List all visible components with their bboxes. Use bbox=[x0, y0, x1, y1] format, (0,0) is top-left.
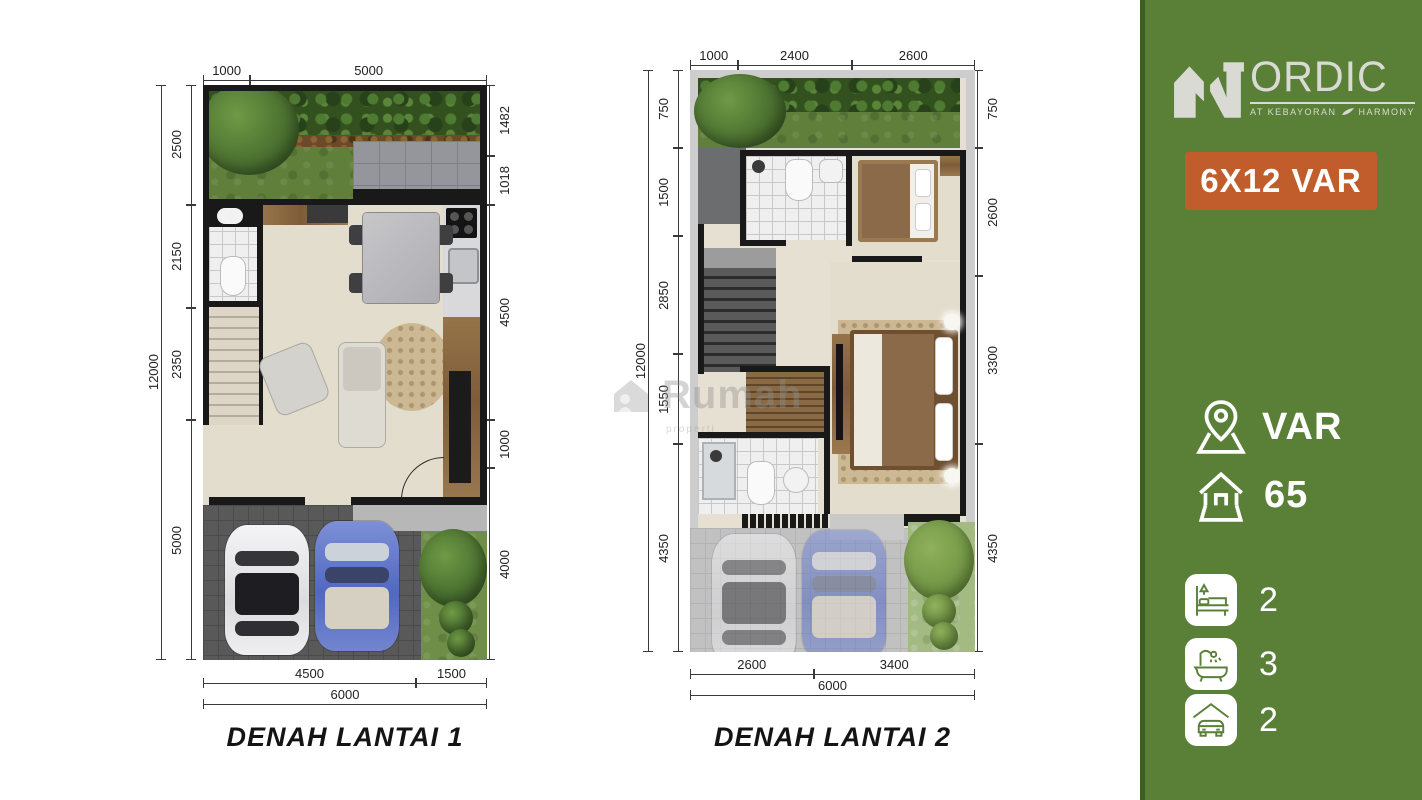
car-interior bbox=[325, 587, 389, 629]
car-windshield bbox=[235, 551, 299, 566]
plan2-left-total-dimension: 12000 bbox=[633, 70, 649, 652]
sidebar-accent-stripe bbox=[1140, 0, 1145, 800]
dimension-label: 5000 bbox=[162, 420, 192, 660]
bathrooms-count: 3 bbox=[1259, 645, 1278, 684]
dimension-label: 4500 bbox=[489, 205, 519, 421]
bathroom-sink bbox=[820, 160, 842, 182]
plan2-title: DENAH LANTAI 2 bbox=[690, 722, 975, 753]
stairs bbox=[209, 307, 261, 425]
dimension-label: 2850 bbox=[649, 236, 679, 354]
plan1-left-total-dimension: 12000 bbox=[146, 85, 162, 660]
dimension-label: 1500 bbox=[649, 148, 679, 236]
wall bbox=[740, 366, 830, 372]
stairs bbox=[704, 268, 776, 372]
floorplan-1-image bbox=[203, 85, 487, 660]
brand-logo: ORDIC AT KEBAYORAN HARMONY bbox=[1172, 56, 1415, 120]
car-blue bbox=[315, 521, 399, 651]
car-rear-window bbox=[722, 630, 786, 645]
feature-bedrooms: 2 bbox=[1185, 574, 1278, 626]
shower-drain bbox=[752, 160, 765, 173]
plan2-top-dimensions: 1000 2400 2600 bbox=[690, 42, 975, 66]
dimension-label: 1000 bbox=[690, 49, 738, 66]
bathroom-sink bbox=[784, 468, 808, 492]
dimension-label: 2400 bbox=[738, 49, 852, 66]
dimension-label: 4000 bbox=[489, 468, 519, 660]
plan1-top-dimensions: 1000 5000 bbox=[203, 57, 487, 81]
dimension-label: 2150 bbox=[162, 205, 192, 308]
carport-ghost bbox=[690, 528, 908, 652]
nightstand bbox=[940, 156, 960, 176]
car-roof-glass bbox=[722, 582, 786, 624]
dimension-label: 3400 bbox=[814, 658, 976, 675]
feature-bathrooms: 3 bbox=[1185, 638, 1278, 690]
car-roof-glass bbox=[235, 573, 299, 615]
car-windshield bbox=[722, 560, 786, 575]
tv bbox=[836, 344, 843, 440]
wall bbox=[698, 432, 824, 438]
dimension-label: 2350 bbox=[162, 308, 192, 421]
roof-edge bbox=[966, 70, 975, 528]
wall bbox=[209, 497, 305, 505]
bed-icon bbox=[1185, 574, 1237, 626]
location-value: VAR bbox=[1262, 406, 1342, 449]
wall bbox=[480, 85, 487, 505]
plan2-bottom-dimensions: 2600 3400 bbox=[690, 654, 975, 675]
plan1-title: DENAH LANTAI 1 bbox=[203, 722, 487, 753]
dimension-label: 1000 bbox=[203, 64, 250, 81]
roof-edge bbox=[690, 70, 698, 528]
dimension-label: 4500 bbox=[203, 667, 416, 684]
bathroom-sink bbox=[217, 208, 243, 224]
dimension-label: 4350 bbox=[977, 444, 1007, 652]
tree bbox=[694, 74, 786, 148]
bedrooms-count: 2 bbox=[1259, 581, 1278, 620]
dimension-label: 1000 bbox=[489, 420, 519, 468]
toilet bbox=[221, 257, 245, 295]
wall bbox=[740, 150, 746, 246]
walk-in-closet bbox=[746, 372, 824, 434]
dimension-label: 2600 bbox=[690, 658, 814, 675]
plant bbox=[447, 629, 475, 657]
nordic-logo-mark-icon bbox=[1172, 56, 1246, 120]
location-pin-icon bbox=[1194, 398, 1248, 456]
stat-location: VAR bbox=[1194, 398, 1342, 456]
dimension-label: 12000 bbox=[633, 70, 649, 652]
dimension-label: 1482 bbox=[489, 85, 519, 156]
dimension-label: 4350 bbox=[649, 444, 679, 652]
bath-icon-glyph bbox=[1190, 643, 1232, 685]
pillow bbox=[916, 170, 930, 196]
car-icon bbox=[1185, 694, 1237, 746]
bed-sheet bbox=[854, 334, 882, 466]
shower-drain bbox=[710, 450, 722, 462]
dimension-label: 6000 bbox=[203, 688, 487, 705]
dimension-label: 2600 bbox=[977, 148, 1007, 276]
tree bbox=[419, 529, 487, 607]
vent-wall bbox=[742, 514, 830, 528]
burner bbox=[464, 225, 473, 234]
car-interior bbox=[812, 596, 876, 638]
car-windshield bbox=[812, 552, 876, 570]
plan1-bottom-total-dimension: 6000 bbox=[203, 684, 487, 705]
sidebar: ORDIC AT KEBAYORAN HARMONY 6X12 VAR bbox=[1140, 0, 1422, 800]
bed-duvet bbox=[882, 334, 934, 466]
burner bbox=[464, 212, 473, 221]
dimension-label: 2600 bbox=[852, 49, 976, 66]
car-rear-window bbox=[235, 621, 299, 636]
car-roof bbox=[812, 576, 876, 592]
dimension-label: 750 bbox=[977, 70, 1007, 148]
dimension-label: 5000 bbox=[250, 64, 487, 81]
leaf-icon bbox=[1341, 107, 1355, 117]
building-size-value: 65 bbox=[1264, 474, 1308, 517]
toilet bbox=[748, 462, 774, 504]
plan1-left-dimensions: 2500 2150 2350 5000 bbox=[162, 85, 192, 660]
house-icon bbox=[1192, 466, 1250, 524]
car-icon-glyph bbox=[1190, 699, 1232, 741]
dimension-label: 2500 bbox=[162, 85, 192, 205]
dining-table bbox=[363, 213, 439, 303]
wall bbox=[203, 85, 487, 91]
dimension-label: 750 bbox=[649, 70, 679, 148]
plan1-right-dimensions: 1482 1018 4500 1000 4000 bbox=[489, 85, 519, 660]
car-blue bbox=[802, 530, 886, 652]
stat-building-size: 65 bbox=[1192, 466, 1308, 524]
carport-count: 2 bbox=[1259, 701, 1278, 740]
dimension-label: 1500 bbox=[416, 667, 487, 684]
pillow bbox=[936, 338, 952, 394]
dimension-label: 3300 bbox=[977, 276, 1007, 444]
bed-icon-glyph bbox=[1190, 579, 1232, 621]
plant bbox=[930, 622, 958, 650]
page: 1000 5000 12000 2500 2150 2350 5000 1482… bbox=[0, 0, 1422, 800]
tagline-right: HARMONY bbox=[1359, 107, 1416, 117]
car-white bbox=[225, 525, 309, 655]
patio bbox=[698, 148, 746, 224]
cabinet-dark bbox=[307, 205, 348, 223]
stair-landing bbox=[704, 248, 776, 268]
burner bbox=[450, 212, 459, 221]
feature-carport: 2 bbox=[1185, 694, 1278, 746]
car-roof bbox=[325, 567, 389, 583]
bedside-lamp bbox=[944, 468, 960, 484]
pillow bbox=[936, 404, 952, 460]
tree bbox=[904, 520, 974, 600]
dimension-label: 1018 bbox=[489, 156, 519, 205]
plan2-left-dimensions: 750 1500 2850 1550 4350 bbox=[649, 70, 679, 652]
car-windshield bbox=[325, 543, 389, 561]
plan1-bottom-dimensions: 4500 1500 bbox=[203, 663, 487, 684]
pillow bbox=[916, 204, 930, 230]
unit-type-label: 6X12 VAR bbox=[1200, 162, 1361, 200]
tagline-left: AT KEBAYORAN bbox=[1250, 107, 1337, 117]
toilet bbox=[786, 160, 812, 200]
bed-blanket bbox=[862, 164, 910, 238]
plan2-bottom-total-dimension: 6000 bbox=[690, 675, 975, 696]
dimension-label: 12000 bbox=[146, 85, 162, 660]
wall bbox=[960, 150, 966, 340]
media-console bbox=[449, 371, 471, 483]
sofa-cushion bbox=[343, 347, 381, 391]
wall bbox=[740, 150, 852, 156]
brand-tagline: AT KEBAYORAN HARMONY bbox=[1250, 102, 1415, 117]
bath-icon bbox=[1185, 638, 1237, 690]
dimension-label: 6000 bbox=[690, 679, 975, 696]
unit-type-badge: 6X12 VAR bbox=[1185, 152, 1377, 210]
wall bbox=[351, 497, 487, 505]
car-white bbox=[712, 534, 796, 652]
dimension-label: 1550 bbox=[649, 354, 679, 444]
floorplan-2-image bbox=[690, 70, 975, 652]
plan2-right-dimensions: 750 2600 3300 4350 bbox=[977, 70, 1007, 652]
wall bbox=[960, 340, 966, 516]
bedside-lamp bbox=[944, 314, 960, 330]
brand-name: ORDIC bbox=[1250, 56, 1408, 99]
